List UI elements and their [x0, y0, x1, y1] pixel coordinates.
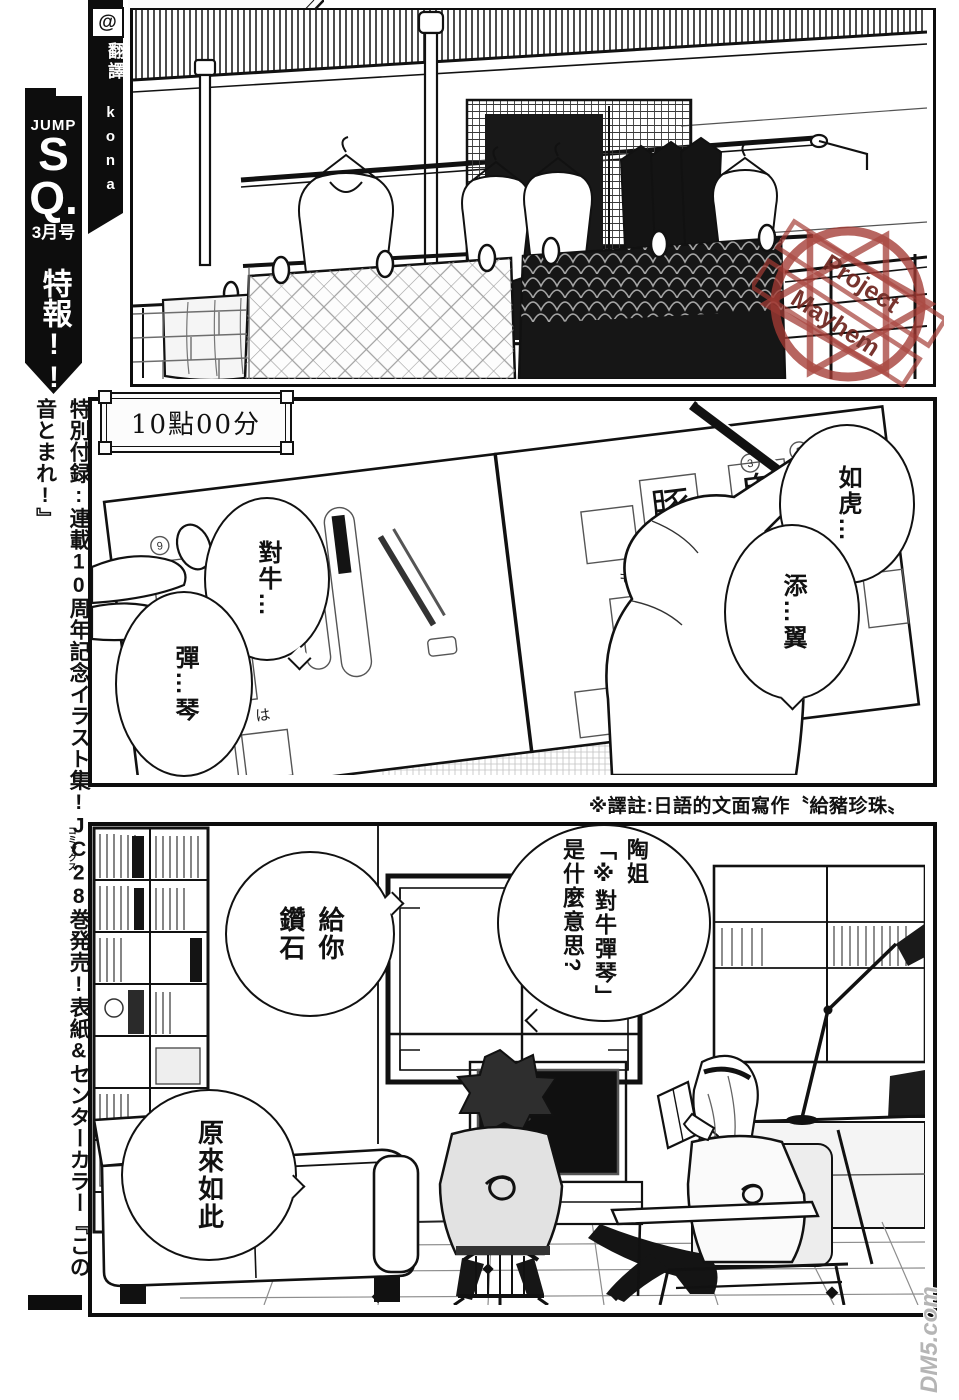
- caption-corner-ornament: [280, 390, 294, 404]
- at-sign: @: [98, 12, 117, 34]
- bubble-text: 陶姐 「※對牛彈琴」 是什麼意思?: [556, 838, 652, 1009]
- bubble-text: 給你 鑽石: [271, 906, 349, 962]
- at-sign-box: @: [91, 7, 124, 38]
- magazine-logo-box: JUMP S Q. 3月号: [25, 96, 82, 264]
- bubble-text: 彈…琴: [166, 645, 202, 723]
- project-mayhem-stamp: Project Mayhem: [752, 208, 944, 405]
- bubble-text: 原來如此: [190, 1119, 229, 1231]
- speech-bubble-diamond: 給你 鑽石: [225, 851, 395, 1017]
- time-caption-box: 10點00分: [100, 392, 292, 453]
- time-caption: 10點00分: [131, 404, 261, 441]
- bubble-text: 如虎…: [829, 465, 865, 543]
- speech-bubble-tanqin: 彈…琴: [115, 591, 253, 777]
- magazine-issue: 3月号: [32, 225, 75, 241]
- comics-furigana: コミックス: [66, 826, 79, 871]
- caption-corner-ornament: [98, 390, 112, 404]
- diamond-blanket: [245, 245, 515, 379]
- sidebar-announcement: 特別付録:連載10周年記念イラスト集!JC28巻発売!表紙&センターカラー『この…: [28, 398, 95, 1298]
- manga-page: JUMP S Q. 3月号 特報!! 特別付録:連載10周年記念イラスト集!JC…: [0, 0, 959, 1400]
- site-watermark: DM5.com: [916, 1285, 944, 1393]
- credit-translator-name: kona: [92, 104, 119, 200]
- speech-bubble-isee: 原來如此: [121, 1089, 297, 1261]
- flash-ribbon: 特報!!: [25, 264, 82, 394]
- caption-corner-ornament: [98, 441, 112, 455]
- scale-blanket: [519, 225, 785, 379]
- magazine-logo-q: Q.: [29, 177, 78, 221]
- desk-clutter: [888, 1070, 925, 1118]
- boy-character: [440, 1050, 562, 1305]
- sidebar-end-bar: [28, 1295, 82, 1310]
- right-bookcase: [714, 866, 925, 1062]
- magazine-logo-s: S: [38, 133, 69, 177]
- speech-bubble-tianyi: 添…翼: [724, 524, 860, 700]
- bubble-text: 添…翼: [774, 573, 810, 651]
- translator-note: ※譯註:日語的文面寫作〝給豬珍珠〟: [589, 791, 907, 818]
- stamp-art: Project Mayhem: [752, 208, 944, 400]
- speech-bubble-question: 陶姐 「※對牛彈琴」 是什麼意思?: [497, 824, 711, 1022]
- flash-text: 特報!!: [32, 268, 76, 394]
- kana-ha: は: [254, 706, 271, 725]
- bubble-text: 對牛…: [249, 540, 285, 618]
- credit-role: 翻譯: [92, 42, 127, 82]
- caption-corner-ornament: [280, 441, 294, 455]
